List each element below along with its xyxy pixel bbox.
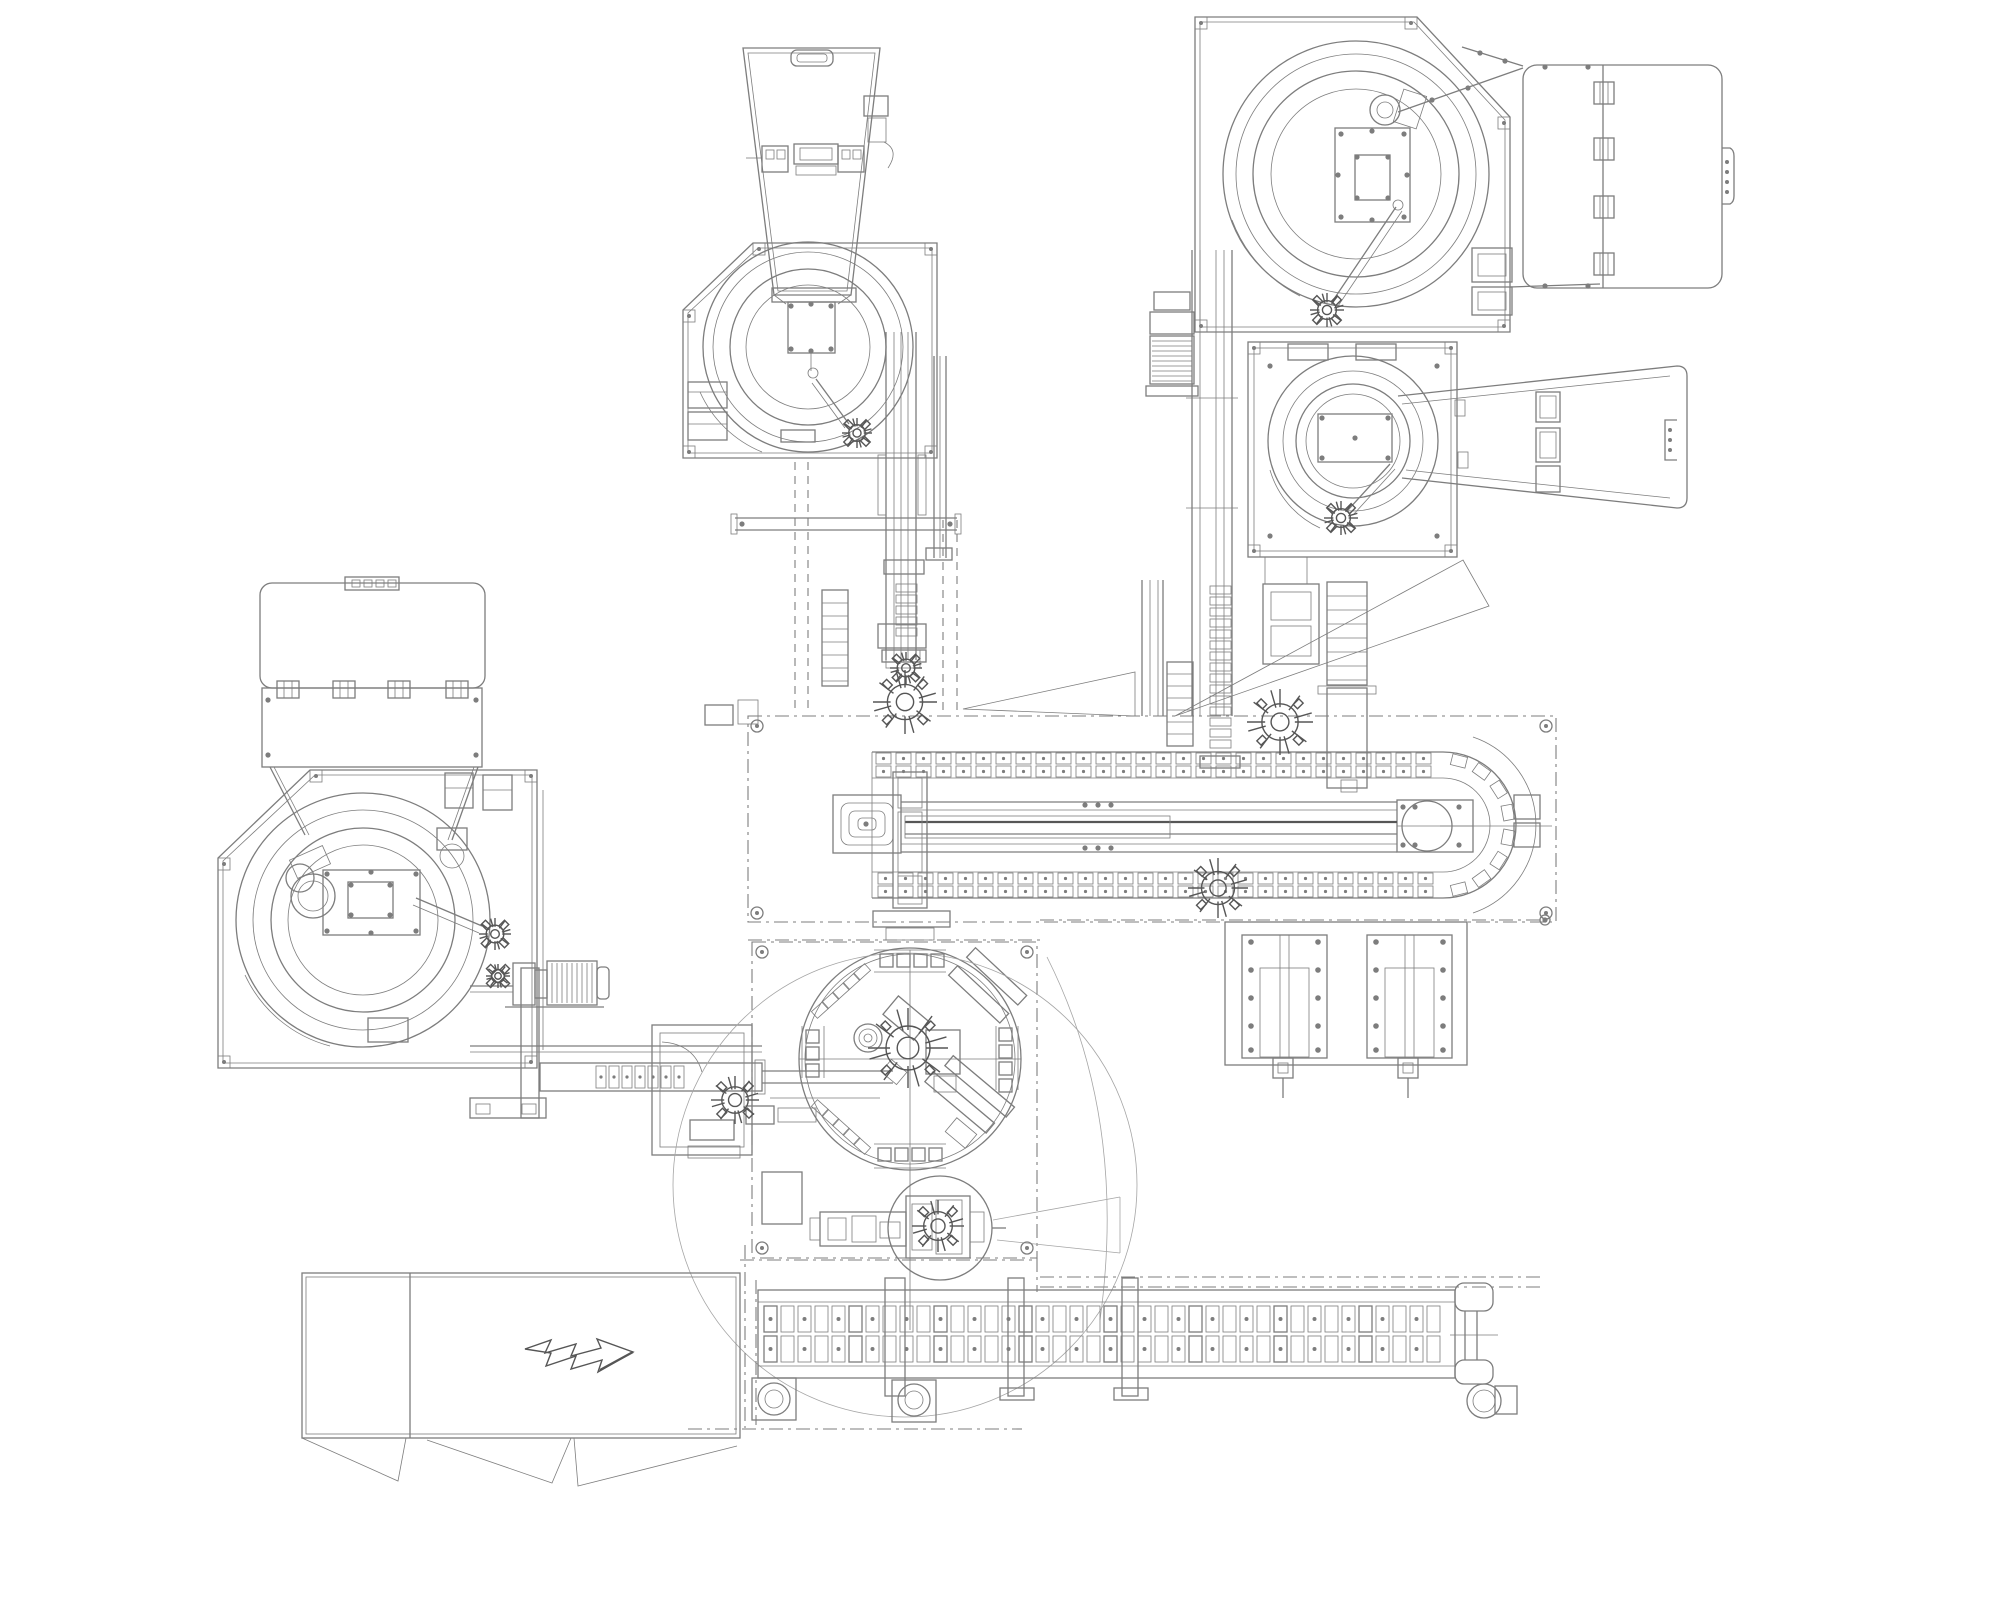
belt-link — [1393, 1306, 1406, 1332]
chain-pin — [1004, 877, 1007, 880]
gear-cluster — [479, 918, 511, 950]
bolt — [1477, 50, 1482, 55]
chain-pin — [1042, 770, 1045, 773]
belt-pin — [1075, 1347, 1079, 1351]
chain-pin — [1062, 770, 1065, 773]
chain-pin — [922, 757, 925, 760]
chain-pin — [942, 757, 945, 760]
gear-cluster — [486, 964, 510, 988]
chain-pin — [944, 877, 947, 880]
chain-pin — [1124, 877, 1127, 880]
clamp-block — [999, 1045, 1012, 1058]
belt-link — [1257, 1336, 1270, 1362]
belt-pin — [939, 1317, 943, 1321]
bolt — [1502, 58, 1507, 63]
belt-link — [1053, 1306, 1066, 1332]
chain-pin — [1044, 877, 1047, 880]
chain-link — [1210, 597, 1231, 605]
chain-pin — [1362, 757, 1365, 760]
chain-link — [896, 595, 917, 603]
chain-pin — [1422, 757, 1425, 760]
bolt — [1338, 214, 1343, 219]
ladder-bracket — [1327, 582, 1367, 685]
chain-pin — [1164, 890, 1167, 893]
chain-pin — [1262, 757, 1265, 760]
bolt — [387, 912, 392, 917]
belt-pin — [1245, 1317, 1249, 1321]
belt-link — [951, 1306, 964, 1332]
chain-link — [1210, 586, 1231, 594]
chain-pin — [1062, 757, 1065, 760]
bolt — [1385, 154, 1390, 159]
bolt — [1095, 802, 1100, 807]
chain-pin — [1322, 757, 1325, 760]
chain-pin — [1384, 877, 1387, 880]
tool-arm — [967, 948, 1027, 1005]
chain-pin — [962, 757, 965, 760]
junction-box — [762, 1172, 802, 1224]
belt-link — [1121, 1336, 1134, 1362]
bolt — [1542, 64, 1547, 69]
bolt — [1585, 64, 1590, 69]
belt-pin — [837, 1347, 841, 1351]
chain-pin — [1244, 890, 1247, 893]
chain-link — [1450, 882, 1467, 896]
bowl-spiral-top-left — [700, 242, 913, 452]
gear-cluster — [873, 670, 937, 734]
belt-link — [1325, 1306, 1338, 1332]
bolt — [1456, 842, 1461, 847]
chain-pin — [599, 1075, 602, 1078]
chain-link — [1472, 763, 1491, 781]
chain-pin — [1344, 890, 1347, 893]
chain-link — [1210, 619, 1231, 627]
chain-link — [1210, 608, 1231, 616]
chain-pin — [1162, 770, 1165, 773]
chain-pin — [924, 890, 927, 893]
bolts-layer — [265, 50, 1590, 935]
chain-pin — [1082, 770, 1085, 773]
belt-pin — [1415, 1347, 1419, 1351]
bolt — [739, 521, 744, 526]
motor-body — [1150, 336, 1194, 384]
chain-links-layer — [596, 584, 1515, 1154]
gear-cluster — [1247, 689, 1313, 755]
chain-pin — [1142, 770, 1145, 773]
bolt — [1369, 128, 1374, 133]
chain-pin — [924, 877, 927, 880]
belt-link — [1019, 1336, 1032, 1362]
chain-pin — [1084, 890, 1087, 893]
chain-pin — [1422, 770, 1425, 773]
chain-pin — [1124, 890, 1127, 893]
chain-link — [896, 628, 917, 636]
bolt — [1385, 195, 1390, 200]
belt-link — [1427, 1336, 1440, 1362]
bolt — [1373, 1023, 1379, 1029]
belt-link — [1019, 1306, 1032, 1332]
bolt — [1456, 804, 1461, 809]
belt-pin — [1075, 1317, 1079, 1321]
bolt — [1373, 967, 1379, 973]
bolt — [1315, 967, 1321, 973]
belt-link — [1325, 1336, 1338, 1362]
chain-pin — [984, 877, 987, 880]
belt-pin — [1279, 1347, 1283, 1351]
belt-link — [985, 1336, 998, 1362]
bolt — [1465, 85, 1470, 90]
chain-pin — [1384, 890, 1387, 893]
chain-pin — [1104, 890, 1107, 893]
belt-links-layer — [764, 1306, 1440, 1362]
bolt — [1267, 363, 1272, 368]
chain-pin — [1342, 770, 1345, 773]
bowl-spiral-mid-right — [1268, 356, 1438, 528]
slide-frame — [1225, 922, 1467, 1065]
chain-pin — [882, 757, 885, 760]
drawing-canvas — [0, 0, 2001, 1601]
chain-pin — [1342, 757, 1345, 760]
chain-pin — [1302, 770, 1305, 773]
chain-pin — [1182, 757, 1185, 760]
swing-envelope — [1047, 957, 1107, 1320]
air-cylinder — [1370, 95, 1400, 125]
chain-pin — [612, 1075, 615, 1078]
belt-link — [1359, 1336, 1372, 1362]
chain-pin — [1362, 770, 1365, 773]
clamp-block — [912, 1148, 925, 1161]
chain-pin — [944, 890, 947, 893]
chain-link — [1490, 851, 1507, 870]
belt-pin — [973, 1317, 977, 1321]
bolt — [1267, 533, 1272, 538]
bolt — [368, 930, 373, 935]
clamp-block — [914, 954, 927, 967]
chain-pin — [1304, 877, 1307, 880]
belt-link — [849, 1336, 862, 1362]
belt-pin — [1279, 1317, 1283, 1321]
chain-link — [1501, 804, 1515, 821]
belt-pin — [1245, 1347, 1249, 1351]
bolt — [1400, 842, 1405, 847]
belt-pin — [1143, 1347, 1147, 1351]
bolt — [265, 752, 270, 757]
belt-link — [781, 1336, 794, 1362]
chain-pin — [677, 1075, 680, 1078]
main-chain-conveyor — [705, 672, 1556, 940]
chain-pin — [1144, 890, 1147, 893]
motor-fins-layer — [552, 341, 1192, 1003]
belt-link — [849, 1306, 862, 1332]
cover-panel-left — [260, 577, 485, 840]
belt-link — [815, 1306, 828, 1332]
bolt — [808, 348, 813, 353]
chain-pin — [1024, 877, 1027, 880]
bolt — [1440, 939, 1446, 945]
belt-link — [1393, 1336, 1406, 1362]
chain-pin — [982, 770, 985, 773]
clamp-block — [806, 1047, 819, 1060]
chain-link — [1210, 674, 1231, 682]
belt-link — [951, 1336, 964, 1362]
chain-pin — [1022, 770, 1025, 773]
belt-pin — [769, 1347, 773, 1351]
chain-pin — [1122, 757, 1125, 760]
clamp-block — [895, 1148, 908, 1161]
chain-pin — [1082, 757, 1085, 760]
belt-link — [1155, 1336, 1168, 1362]
chain-link — [843, 1128, 860, 1145]
chain-pin — [942, 770, 945, 773]
chain-link — [822, 992, 839, 1009]
belt-pin — [1143, 1317, 1147, 1321]
chain-pin — [884, 877, 887, 880]
discharge-chute-mid-right — [1175, 366, 1687, 716]
outfeed-chain-conveyor — [688, 1245, 1545, 1429]
chain-link — [1490, 780, 1507, 799]
belt-pin — [1415, 1317, 1419, 1321]
panel-latch — [1722, 148, 1734, 204]
lower-press-station — [810, 1176, 1006, 1280]
gear-cluster — [1324, 501, 1358, 535]
belt-pin — [769, 1317, 773, 1321]
chain-pin — [1424, 877, 1427, 880]
chain-link — [1210, 652, 1231, 660]
chain-link — [853, 964, 870, 981]
belt-link — [1189, 1336, 1202, 1362]
bolt — [1082, 802, 1087, 807]
belt-pin — [1313, 1347, 1317, 1351]
chain-pin — [1222, 770, 1225, 773]
chain-pin — [1024, 890, 1027, 893]
chain-pin — [1344, 877, 1347, 880]
vertical-track-left — [878, 332, 952, 662]
bolt — [1440, 1047, 1446, 1053]
bolt — [863, 821, 868, 826]
rotary-footprint-outline — [752, 942, 1037, 1258]
chain-pin — [884, 890, 887, 893]
chain-link — [843, 973, 860, 990]
chain-pin — [904, 877, 907, 880]
chain-link — [1210, 740, 1231, 748]
belt-pin — [1177, 1347, 1181, 1351]
bolt — [1315, 939, 1321, 945]
belt-pin — [1041, 1347, 1045, 1351]
chain-pin — [1064, 877, 1067, 880]
bolt — [1373, 1047, 1379, 1053]
bolt — [265, 697, 270, 702]
machine-layout-drawing — [0, 0, 2001, 1601]
chain-pin — [1122, 770, 1125, 773]
bolt — [1338, 131, 1343, 136]
belt-pin — [1109, 1317, 1113, 1321]
end-drive-unit — [1450, 1283, 1517, 1418]
chain-pin — [1402, 770, 1405, 773]
clamp-block — [999, 1062, 1012, 1075]
belt-link — [815, 1336, 828, 1362]
station-squares-layer — [806, 954, 1012, 1161]
belt-pin — [871, 1347, 875, 1351]
bolt — [1108, 802, 1113, 807]
bolt — [1585, 283, 1590, 288]
chain-pin — [904, 890, 907, 893]
belt-link — [1087, 1336, 1100, 1362]
bolt — [1440, 967, 1446, 973]
ladder-bracket — [822, 590, 848, 686]
chain-pin — [1282, 757, 1285, 760]
chain-pin — [964, 890, 967, 893]
bolt — [1542, 283, 1547, 288]
bolt — [413, 871, 418, 876]
belt-pin — [1109, 1347, 1113, 1351]
caster-wheel — [752, 1378, 796, 1420]
bolt — [1248, 1047, 1254, 1053]
hinge-blocks — [277, 681, 468, 698]
bowl-center-pad — [788, 302, 835, 353]
belt-pin — [1211, 1317, 1215, 1321]
bolt — [324, 871, 329, 876]
chain-pin — [638, 1075, 641, 1078]
belt-link — [1121, 1306, 1134, 1332]
chain-pin — [1222, 757, 1225, 760]
chain-pin — [1202, 770, 1205, 773]
chain-pin — [1424, 890, 1427, 893]
bolt — [828, 303, 833, 308]
chain-pin — [1264, 890, 1267, 893]
belt-pin — [803, 1317, 807, 1321]
bolt — [1248, 1023, 1254, 1029]
infeed-linear-conveyor — [470, 968, 765, 1118]
belt-link — [1189, 1306, 1202, 1332]
bin-outline — [302, 1273, 740, 1438]
chain-pin — [962, 770, 965, 773]
chain-pin — [1004, 890, 1007, 893]
chain-pin — [1282, 770, 1285, 773]
belt-pin — [1211, 1347, 1215, 1351]
discharge-bin — [302, 1273, 740, 1486]
chain-link — [896, 584, 917, 592]
belt-pin — [871, 1317, 875, 1321]
chain-pin — [1382, 757, 1385, 760]
belt-link — [1223, 1306, 1236, 1332]
chain-pin — [625, 1075, 628, 1078]
bolt — [1369, 217, 1374, 222]
bolt — [1315, 995, 1321, 1001]
belt-link — [1359, 1306, 1372, 1332]
chain-link — [853, 1138, 870, 1155]
chain-pin — [1284, 877, 1287, 880]
belt-link — [781, 1306, 794, 1332]
chain-pin — [1044, 890, 1047, 893]
belt-link — [1291, 1336, 1304, 1362]
clamp-block — [929, 1148, 942, 1161]
bolt — [1440, 995, 1446, 1001]
bolt — [1434, 363, 1439, 368]
slide-plate — [1367, 935, 1452, 1098]
chain-pin — [1002, 770, 1005, 773]
bolt — [348, 912, 353, 917]
chain-pin — [1364, 877, 1367, 880]
slide-plate — [1242, 935, 1327, 1098]
chain-pin — [1322, 770, 1325, 773]
chain-link — [1210, 641, 1231, 649]
chain-link — [1472, 870, 1491, 888]
chain-pin — [1144, 877, 1147, 880]
chain-pin — [1302, 757, 1305, 760]
chain-pin — [1084, 877, 1087, 880]
bolt — [1404, 172, 1409, 177]
chain-pin — [1324, 877, 1327, 880]
chain-pin — [1022, 757, 1025, 760]
chain-pin — [651, 1075, 654, 1078]
belt-link — [917, 1336, 930, 1362]
pick-head-column — [1327, 688, 1367, 788]
assembly-head-cluster — [854, 996, 960, 1092]
chain-link — [1210, 707, 1231, 715]
chain-pin — [1182, 770, 1185, 773]
bolt — [473, 752, 478, 757]
idler-plate — [1397, 800, 1552, 852]
chain-link — [1210, 729, 1231, 737]
bolt — [1108, 845, 1113, 850]
chain-pin — [1042, 757, 1045, 760]
bolt — [473, 697, 478, 702]
bolt — [1401, 214, 1406, 219]
belt-pin — [1381, 1347, 1385, 1351]
chain-pin — [1242, 770, 1245, 773]
chain-pin — [1102, 757, 1105, 760]
belt-pin — [1313, 1317, 1317, 1321]
conveyor-footprint-outline — [748, 716, 1556, 922]
belt-link — [985, 1306, 998, 1332]
belt-pin — [1347, 1347, 1351, 1351]
chain-pin — [1304, 890, 1307, 893]
bolt — [1082, 845, 1087, 850]
chain-pin — [1162, 757, 1165, 760]
lightning-arrow-icon — [525, 1339, 633, 1372]
belt-pin — [803, 1347, 807, 1351]
bolt — [1542, 917, 1547, 922]
clamp-block — [806, 1030, 819, 1043]
belt-pin — [837, 1317, 841, 1321]
bolt — [1385, 455, 1390, 460]
chain-pin — [1184, 877, 1187, 880]
bolt — [1354, 195, 1359, 200]
bolt — [788, 346, 793, 351]
hinge-blocks — [1594, 82, 1614, 275]
chain-pin — [1364, 890, 1367, 893]
chain-pin — [1324, 890, 1327, 893]
clamp-block — [999, 1028, 1012, 1041]
clamp-block — [897, 954, 910, 967]
bolt — [368, 869, 373, 874]
chain-pin — [1104, 877, 1107, 880]
belt-pin — [973, 1347, 977, 1351]
belt-pin — [1041, 1317, 1045, 1321]
bolt — [1315, 1023, 1321, 1029]
chain-pin — [1202, 757, 1205, 760]
track-support — [521, 968, 539, 1118]
bolt — [1440, 1023, 1446, 1029]
bolt — [387, 882, 392, 887]
bolt — [348, 882, 353, 887]
chain-link — [1210, 630, 1231, 638]
bolt — [1401, 131, 1406, 136]
cover-panel-top-right — [1523, 65, 1734, 288]
chain-pin — [1242, 757, 1245, 760]
belt-frame — [758, 1290, 1455, 1378]
chain-pin — [1284, 890, 1287, 893]
